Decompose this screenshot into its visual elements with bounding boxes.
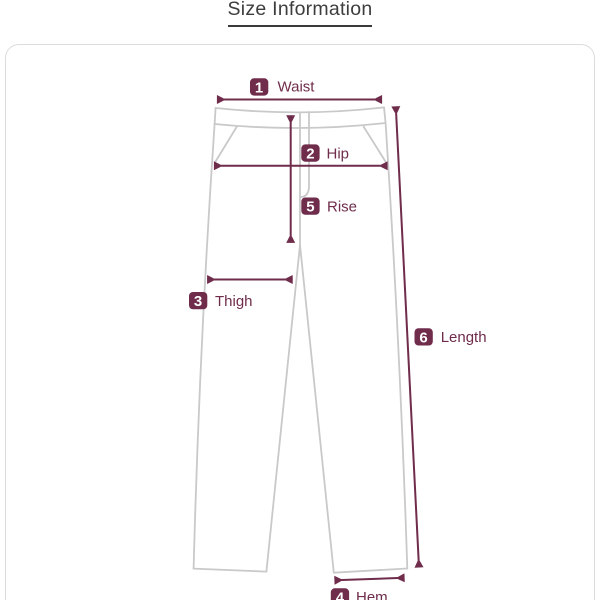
svg-text:Hip: Hip <box>327 145 350 162</box>
svg-text:6: 6 <box>419 329 427 346</box>
svg-text:Rise: Rise <box>327 198 357 215</box>
svg-text:Waist: Waist <box>278 79 316 96</box>
svg-text:1: 1 <box>255 79 263 96</box>
svg-text:3: 3 <box>194 293 202 310</box>
svg-text:5: 5 <box>306 199 314 216</box>
svg-text:2: 2 <box>306 146 314 163</box>
svg-text:Length: Length <box>441 329 487 346</box>
svg-text:Hem: Hem <box>356 589 388 600</box>
svg-text:4: 4 <box>336 589 345 600</box>
svg-text:Thigh: Thigh <box>215 293 253 310</box>
